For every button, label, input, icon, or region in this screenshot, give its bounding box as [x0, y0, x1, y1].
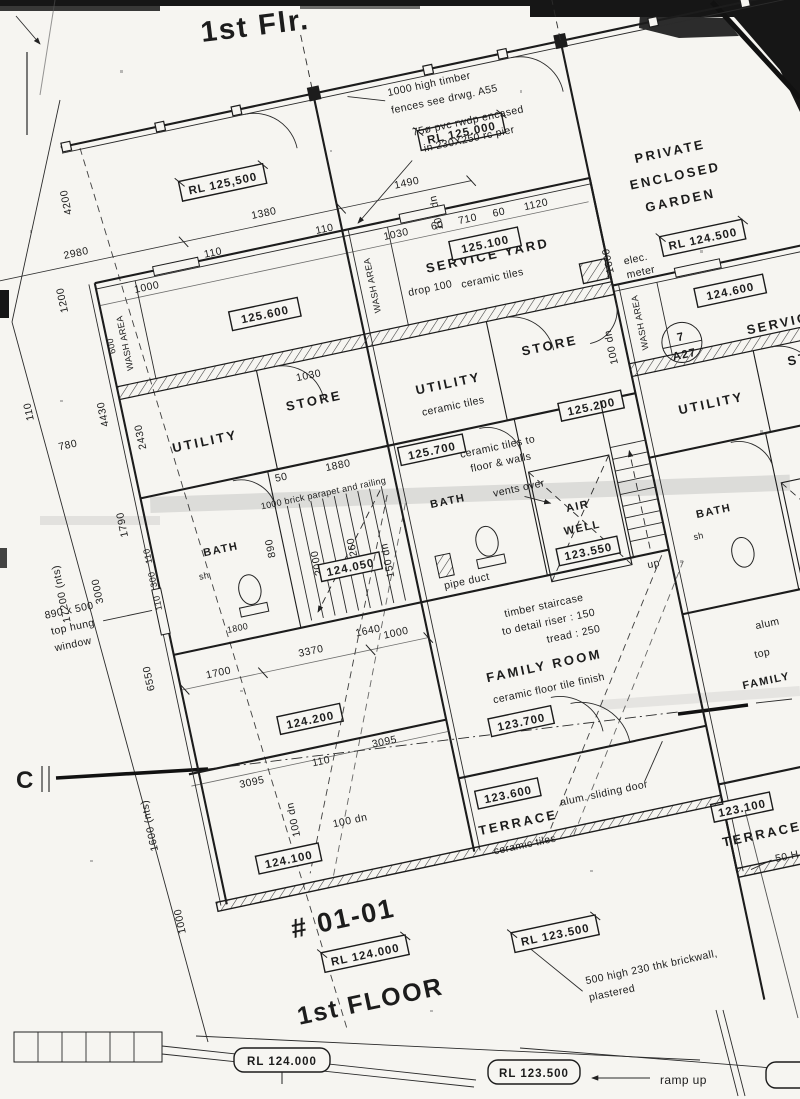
- level-box-124600: 124.600: [694, 274, 766, 307]
- dim-1880: 1880: [324, 457, 351, 474]
- gate-swing-arc: [511, 49, 563, 101]
- store-u3: STORE: [786, 342, 800, 369]
- dim-890: 890: [263, 538, 279, 559]
- level-box-rl124000-bottom: RL 124.000: [234, 1048, 330, 1084]
- level-rl124000-bottom: RL 124.000: [247, 1056, 317, 1068]
- dim-1380: 1380: [250, 205, 277, 222]
- pipe-duct-shaft: [435, 553, 454, 578]
- dim-780: 780: [57, 437, 78, 453]
- wash-area-u1: WASH AREA: [114, 315, 135, 372]
- air-well-label-1: AIR: [565, 498, 590, 515]
- level-box-rl123500-plan: RL 123.500: [507, 910, 603, 953]
- shower-u1: sh: [198, 570, 210, 582]
- scanned-floor-plan-page: 1st Flr. C: [0, 0, 800, 1099]
- dim-110: 110: [311, 754, 331, 770]
- level-box-rl124000-plan: RL 124.000: [317, 930, 413, 973]
- dim-2980: 2980: [63, 245, 90, 262]
- wash-area-u3: WASH AREA: [629, 294, 650, 351]
- private-garden-label-1: PRIVATE: [633, 136, 706, 166]
- dim-100dn: 100 dn: [284, 801, 303, 838]
- elec-meter-box: [579, 259, 609, 284]
- brickwall-note-2: plastered: [588, 982, 636, 1003]
- left-dimension-chain: 4200 1200 4430 780 110 1790 110 300 110 …: [0, 188, 231, 945]
- shower-u3: sh: [693, 530, 705, 542]
- floor-plan-canvas: 1st Flr. C: [0, 0, 800, 1099]
- level-box-124200: 124.200: [277, 703, 343, 734]
- window: [153, 257, 200, 275]
- air-well-u2: AIR WELL 123.550: [529, 455, 632, 582]
- dim-1800: 1800: [226, 621, 249, 635]
- handwritten-unit-number: # 01-01: [288, 893, 398, 944]
- dim-1790: 1790: [114, 511, 131, 538]
- level-box-123700: 123.700: [488, 706, 554, 737]
- dim-1030: 1030: [295, 367, 322, 384]
- level-box-rl125500: RL 125,500: [175, 159, 271, 202]
- garden-area: RL 125,500 RL 125.000 PRIVATE ENCLOSED G…: [165, 20, 750, 353]
- wc-u2: [473, 524, 501, 558]
- dim-600: 600: [105, 337, 118, 355]
- level-box-125700: 125.700: [398, 434, 466, 465]
- handwritten-floor-note: 1st Flr.: [199, 4, 312, 49]
- sliding-door-note: alum. sliding door: [559, 778, 649, 808]
- corner-arrow-icon: [16, 16, 40, 44]
- floor-plan: RL 125,500 RL 125.000 PRIVATE ENCLOSED G…: [0, 0, 800, 1099]
- dim-100dn: 100 dn: [602, 329, 621, 366]
- air-well-label-2: WELL: [563, 518, 602, 537]
- wc-cistern-u2: [477, 554, 506, 569]
- utility-u1: UTILITY: [171, 427, 239, 456]
- level-box-rl124500: RL 124.500: [656, 214, 751, 257]
- a27-top: 7: [676, 331, 686, 344]
- up-label: up: [646, 557, 661, 571]
- level-rl123500-bottom: RL 123.500: [499, 1068, 569, 1080]
- wash-area-u2: WASH AREA: [362, 257, 383, 314]
- dim-3095: 3095: [371, 733, 398, 750]
- dim-6550: 6550: [141, 665, 158, 692]
- dim-60: 60: [430, 219, 445, 233]
- dim-50: 50: [274, 470, 289, 484]
- level-box-rl123500-bottom: RL 123.500: [488, 1060, 580, 1084]
- section-c-label: C: [16, 767, 33, 794]
- brickwall-note-1: 500 high 230 thk brickwall,: [584, 948, 718, 988]
- dim-710: 710: [457, 211, 478, 227]
- dim-1600-nts: 1600 (nts): [138, 799, 161, 853]
- dim-2430: 2430: [132, 423, 149, 450]
- dim-1200: 1200: [54, 287, 71, 314]
- utility-u2: UTILITY: [414, 369, 482, 398]
- bath-u1: BATH: [202, 540, 239, 559]
- wc-u1: [236, 573, 264, 607]
- ramp-label: ramp up: [660, 1073, 707, 1087]
- level-box-123600: 123.600: [475, 778, 541, 809]
- utility-u2-finish: ceramic tiles: [421, 394, 486, 419]
- private-garden-label-3: GARDEN: [644, 185, 717, 215]
- level-box-125600: 125.600: [229, 297, 301, 330]
- dim-100dn: 100 dn: [332, 811, 369, 830]
- alum-note-cut: alum: [754, 615, 780, 632]
- dim-1700: 1700: [205, 664, 232, 681]
- handwritten-floor-title: 1st FLOOR: [295, 972, 446, 1030]
- utility-u3: UTILITY: [677, 389, 745, 418]
- service-yard-finish: ceramic tiles: [460, 266, 525, 291]
- window: [674, 259, 721, 277]
- dim-3095: 3095: [238, 774, 265, 791]
- level-box-cut: [766, 1062, 800, 1088]
- door-swing-arc: [551, 688, 603, 740]
- section-line-c: C: [16, 699, 792, 794]
- door-swing-arc: [731, 435, 772, 472]
- wc-u3: [729, 535, 757, 569]
- level-box-125200: 125.200: [558, 390, 624, 421]
- gate-swing-arc: [245, 105, 297, 157]
- dim-60: 60: [491, 205, 506, 219]
- drop-note: drop 100: [407, 278, 453, 299]
- bottom-hatched-bar: [14, 1032, 162, 1062]
- dim-3370: 3370: [297, 643, 324, 660]
- apron-area: # 01-01 RL 124.000 1st FLOOR RL 123.500 …: [277, 829, 722, 1064]
- wc-cistern-u1: [239, 602, 268, 617]
- dim-4200: 4200: [58, 189, 75, 216]
- store-u1: STORE: [285, 387, 344, 414]
- bath-u3: BATH: [695, 502, 732, 521]
- dim-4430: 4430: [95, 401, 112, 428]
- level-box-124100: 124.100: [255, 843, 321, 874]
- dim-1000: 1000: [382, 625, 409, 642]
- top-note-cut: top: [753, 646, 771, 661]
- store-u2: STORE: [520, 332, 579, 359]
- window-note-3: window: [53, 635, 93, 655]
- dim-1000: 1000: [172, 908, 189, 935]
